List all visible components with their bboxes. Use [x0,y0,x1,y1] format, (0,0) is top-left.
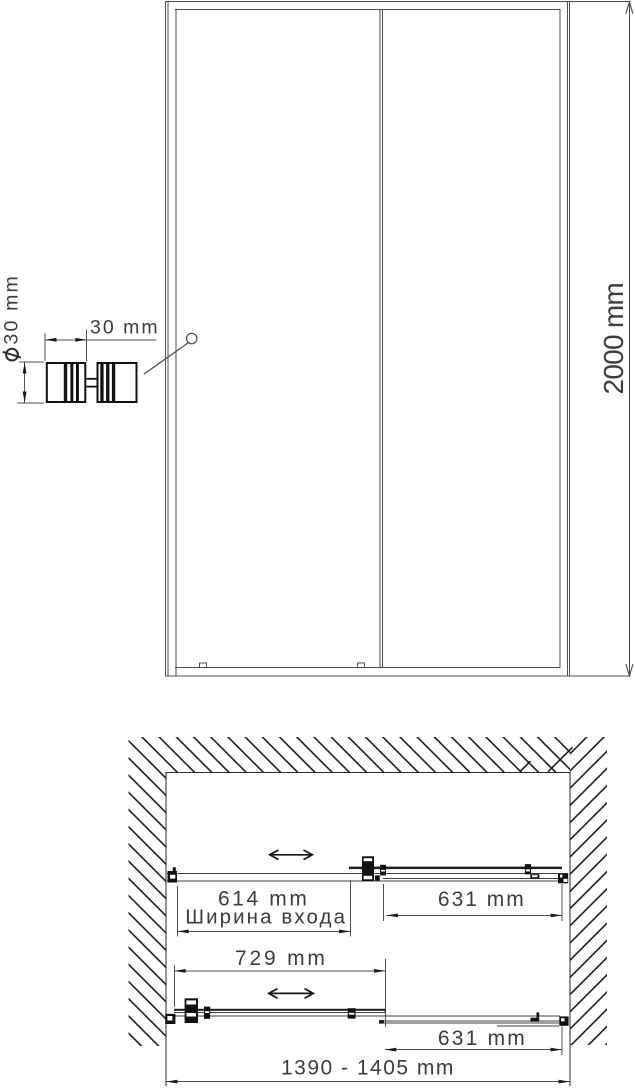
svg-text:631 mm: 631 mm [438,888,526,911]
svg-text:631 mm: 631 mm [438,1027,527,1050]
svg-text:729 mm: 729 mm [235,947,328,970]
svg-text:30 mm: 30 mm [1,274,23,345]
svg-text:1390 - 1405 mm: 1390 - 1405 mm [281,1057,455,1080]
svg-text:30 mm: 30 mm [90,317,160,339]
svg-text:Ширина входа: Ширина входа [185,906,347,929]
svg-text:2000 mm: 2000 mm [598,283,629,394]
